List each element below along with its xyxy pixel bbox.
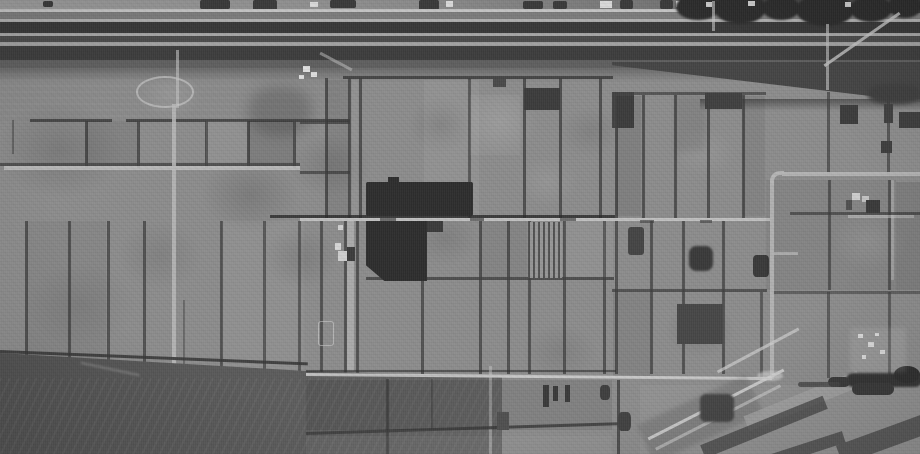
aerial-photo [0, 0, 920, 454]
film-grain [0, 0, 920, 454]
